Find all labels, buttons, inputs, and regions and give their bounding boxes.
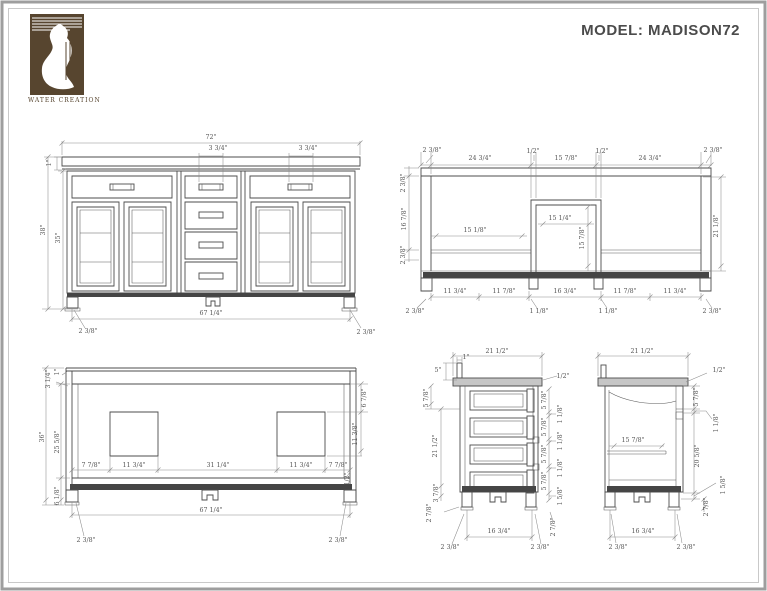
technical-drawing-canvas [0,0,767,591]
brand-logo: WATER CREATION [28,12,98,104]
open-front-section-view [404,152,726,308]
logo-spacer [28,12,98,95]
front-elevation-view [42,141,363,329]
drawing-sheet: WATER CREATION MODEL: MADISON72 72"3 3/4… [0,0,767,591]
brand-name: WATER CREATION [28,97,98,104]
side-section-drawers-view [425,352,557,544]
side-section-open-view [596,352,717,543]
rear-elevation-view [42,366,368,537]
model-title: MODEL: MADISON72 [581,22,740,39]
